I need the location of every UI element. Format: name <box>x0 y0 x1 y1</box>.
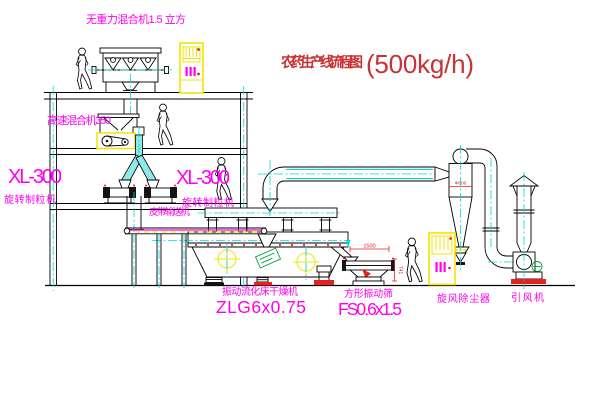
label-sieve-model: FS0.6x1.5 <box>338 299 402 319</box>
sieve-height-dim: 741 <box>397 266 403 275</box>
label-cyclone: 旋风除尘器 <box>437 292 490 305</box>
worker-roof <box>76 48 92 89</box>
cad-canvas: Φ800 <box>0 0 600 403</box>
sieve-length-dim: 1500 <box>363 244 375 250</box>
conveyor-legs <box>132 234 186 288</box>
drop-chute <box>124 192 144 232</box>
label-granulator-left-model: XL-300 <box>8 166 62 188</box>
gravity-free-mixer <box>88 48 172 120</box>
title-text: 农药生产线流程图 <box>280 54 363 70</box>
fan-suction-pipe <box>466 149 516 268</box>
control-cabinet-bottom <box>429 233 455 285</box>
control-cabinet-top <box>180 43 203 93</box>
process-flow-drawing: Φ800 <box>0 0 600 403</box>
title-capacity: (500kg/h) <box>366 49 474 79</box>
label-fan: 引风机 <box>511 291 544 304</box>
label-granulator-left-name: 旋转制粒机 <box>4 193 56 206</box>
label-granulator-right-model: XL-300 <box>176 167 230 189</box>
label-high-speed-mixer: 高速混合机350 <box>47 113 111 127</box>
worker-floor2 <box>157 104 173 145</box>
granulator-left <box>103 180 136 204</box>
vibrating-sieve: 1500 741 <box>342 244 403 286</box>
label-gravity-mixer: 无重力混合机1.5 立方 <box>86 12 186 26</box>
granulator-right <box>144 180 177 204</box>
worker-ground <box>405 238 422 282</box>
label-dryer-model: ZLG6x0.75 <box>216 297 306 317</box>
induced-draft-fan <box>510 172 546 289</box>
label-belt-conveyor: 皮带输送机 <box>149 206 190 218</box>
